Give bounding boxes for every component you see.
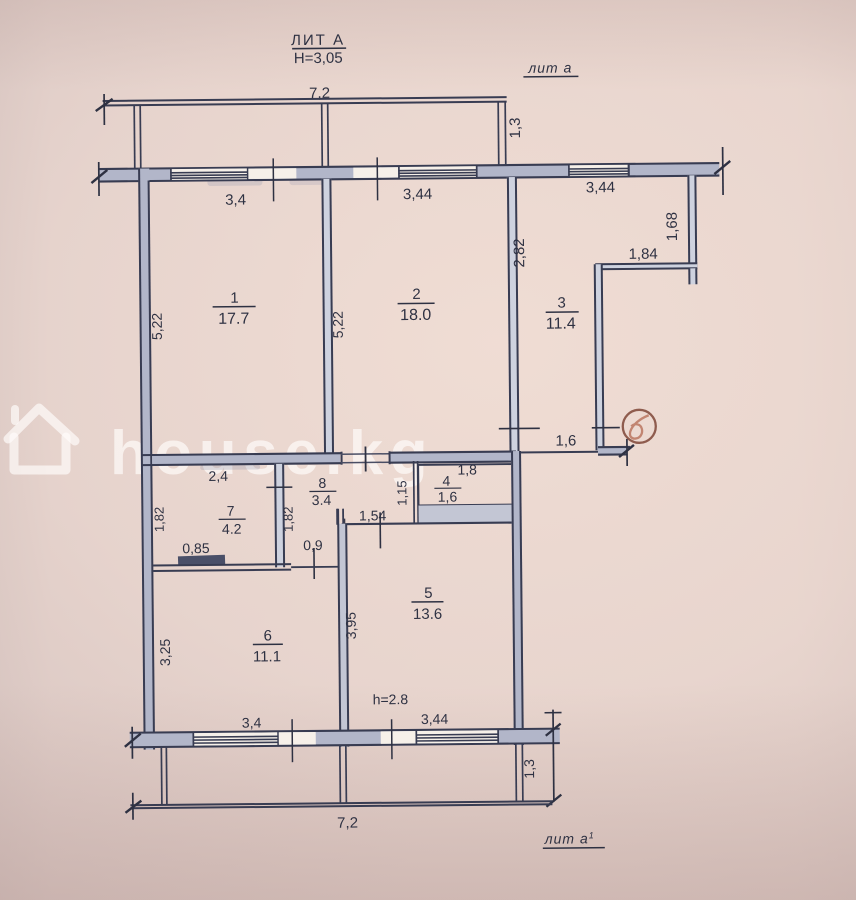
svg-text:6: 6 [264, 627, 273, 644]
svg-text:5,22: 5,22 [330, 311, 346, 339]
svg-text:1,82: 1,82 [281, 506, 296, 531]
svg-text:3,95: 3,95 [343, 612, 359, 640]
svg-text:3,4: 3,4 [225, 192, 246, 209]
svg-text:1,54: 1,54 [359, 507, 387, 523]
svg-text:11.4: 11.4 [546, 315, 576, 332]
svg-text:1,6: 1,6 [555, 432, 576, 449]
svg-text:8: 8 [318, 475, 326, 491]
svg-text:11.1: 11.1 [253, 648, 281, 665]
svg-text:3,4: 3,4 [242, 714, 262, 730]
svg-text:3,44: 3,44 [586, 179, 615, 196]
svg-text:0,85: 0,85 [182, 540, 210, 556]
svg-text:1: 1 [230, 290, 239, 307]
svg-text:H=3,05: H=3,05 [294, 50, 343, 67]
svg-text:3,44: 3,44 [421, 711, 449, 727]
svg-text:2,82: 2,82 [511, 238, 528, 267]
svg-text:1,6: 1,6 [438, 489, 458, 505]
svg-text:h=2.8: h=2.8 [373, 691, 409, 707]
svg-text:1,82: 1,82 [152, 507, 167, 532]
svg-text:3,44: 3,44 [403, 186, 432, 203]
svg-text:ЛИТ А: ЛИТ А [291, 32, 345, 50]
svg-text:5,22: 5,22 [149, 313, 165, 341]
svg-text:3.4: 3.4 [312, 492, 332, 508]
svg-text:1,84: 1,84 [628, 246, 657, 263]
svg-text:2: 2 [412, 286, 421, 303]
svg-text:2,4: 2,4 [208, 468, 228, 484]
svg-text:лит а: лит а [527, 59, 572, 75]
svg-text:13.6: 13.6 [413, 606, 442, 623]
svg-text:1,8: 1,8 [457, 461, 477, 477]
svg-text:3,25: 3,25 [157, 638, 173, 666]
svg-text:лит а1: лит а1 [544, 830, 595, 846]
svg-text:5: 5 [424, 585, 433, 602]
svg-text:18.0: 18.0 [400, 307, 431, 324]
svg-text:3: 3 [557, 295, 566, 312]
svg-text:4: 4 [442, 473, 450, 489]
svg-text:17.7: 17.7 [218, 311, 249, 328]
svg-text:1,68: 1,68 [664, 212, 681, 241]
svg-text:7,2: 7,2 [337, 815, 358, 832]
svg-text:0,9: 0,9 [303, 537, 323, 553]
svg-text:4.2: 4.2 [222, 521, 242, 537]
svg-text:1,15: 1,15 [394, 480, 409, 505]
svg-text:7: 7 [227, 503, 235, 519]
svg-text:1,3: 1,3 [507, 118, 524, 139]
